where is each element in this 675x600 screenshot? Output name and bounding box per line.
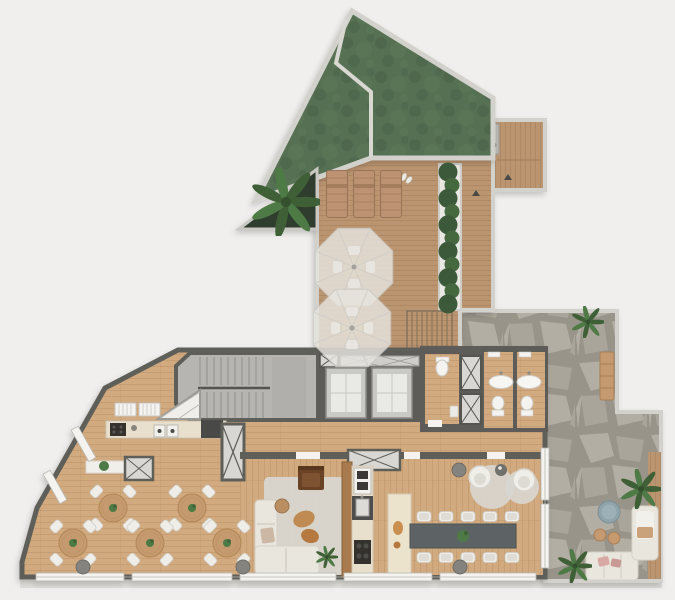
stair-landing [272, 357, 306, 418]
range [354, 540, 371, 564]
patio-stool [608, 532, 620, 544]
sink-basin [517, 376, 541, 389]
armchair [298, 466, 324, 490]
sun-lounger [327, 171, 348, 218]
dining-chair [417, 553, 431, 563]
long-dining-table [410, 524, 516, 548]
patio-stool [594, 529, 606, 541]
door-opening [487, 452, 505, 459]
cooktop [110, 423, 126, 436]
dining-chair [439, 553, 453, 563]
kettle [131, 425, 137, 431]
floor-shaft [125, 457, 153, 480]
toilet [436, 360, 448, 376]
patio-bench [600, 352, 614, 400]
hedge-shrub [439, 295, 458, 314]
small-basin [450, 406, 458, 417]
side-table [275, 499, 289, 513]
patio-coffee-table [598, 501, 620, 523]
sink [356, 499, 369, 516]
dining-chair [417, 512, 431, 522]
sun-lounger [354, 171, 375, 218]
patio-umbrella [313, 289, 391, 367]
living-room [255, 466, 344, 575]
throw-pillow [260, 527, 275, 544]
service-shaft [461, 356, 481, 424]
sink-basin [489, 376, 513, 389]
swivel-chair [513, 469, 535, 491]
toilet [492, 396, 504, 416]
kitchen-island [388, 494, 411, 577]
lounge-corner [469, 464, 539, 509]
dining-chair [461, 512, 475, 522]
structural-column [452, 463, 466, 477]
structural-column [76, 560, 90, 574]
dining-chair [505, 512, 519, 522]
structural-column [453, 560, 467, 574]
wood-partition [342, 462, 352, 577]
door-opening [296, 452, 320, 459]
sun-lounger [381, 171, 402, 218]
elevator-cabin [372, 368, 412, 418]
dark-cabinet [201, 420, 223, 438]
wc-door [428, 420, 442, 427]
door-opening [404, 452, 420, 459]
dining-chair [505, 553, 519, 563]
swivel-chair [469, 466, 491, 488]
accessible-lift-corridor [493, 120, 545, 190]
elevator-cabin [326, 368, 366, 418]
structural-column [236, 560, 250, 574]
floor-plan-stage [0, 0, 675, 600]
toilet [521, 396, 533, 416]
floor-plan-canvas [0, 0, 675, 600]
patio-sofa [586, 552, 638, 580]
patio-lounge-chair [632, 506, 658, 560]
dining-chair [439, 512, 453, 522]
deck-stairs [407, 311, 452, 352]
bathrooms [420, 346, 548, 432]
dining-chair [483, 512, 497, 522]
side-table [495, 464, 507, 476]
food-platter [393, 521, 403, 535]
dining-chair [483, 553, 497, 563]
potted-plant [99, 461, 109, 471]
